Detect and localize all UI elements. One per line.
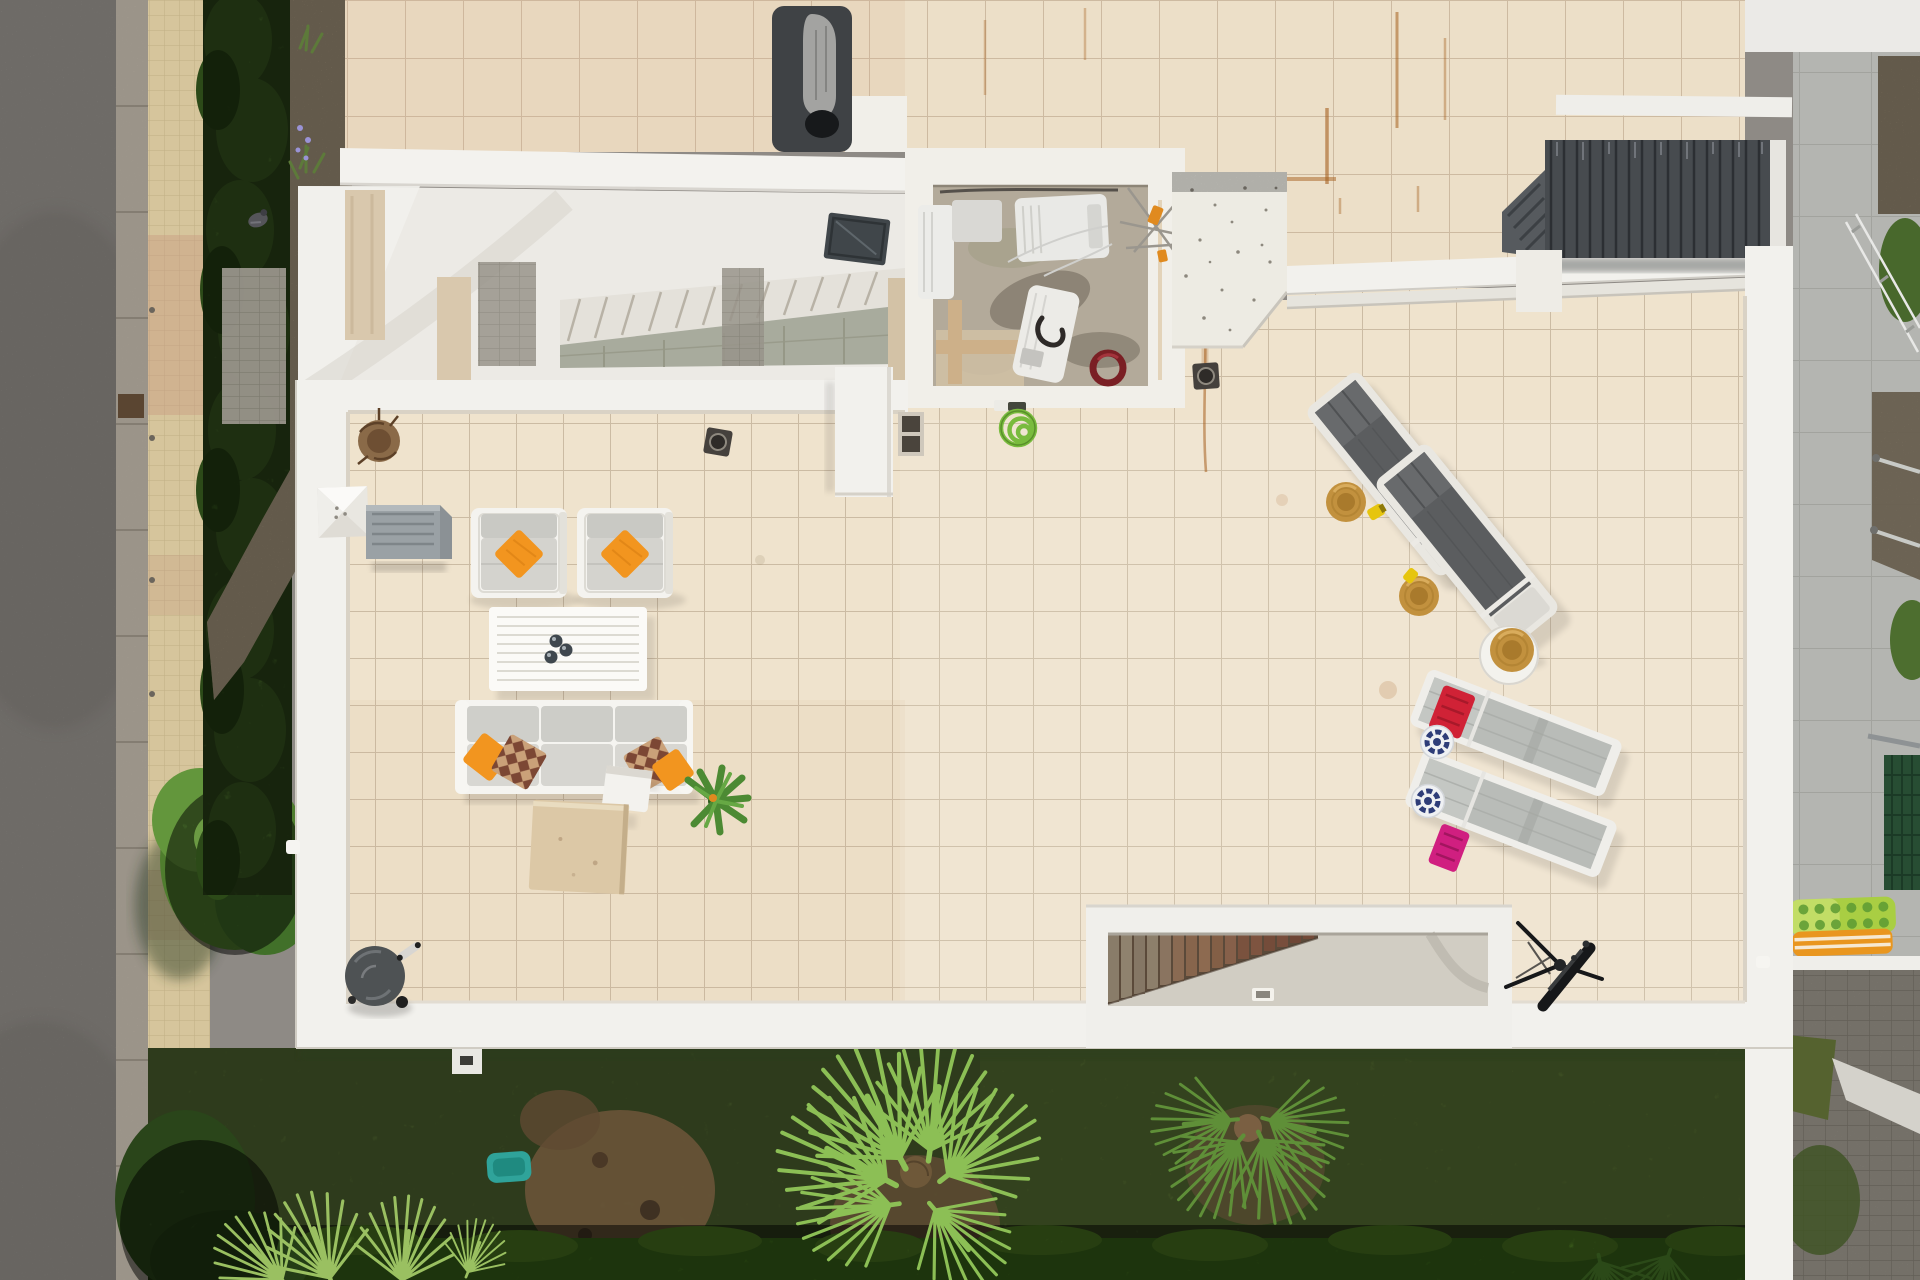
hedge-row xyxy=(196,0,292,900)
right-parapet xyxy=(1745,246,1793,1280)
sand-cube xyxy=(529,800,638,895)
stone-path xyxy=(222,268,286,424)
aerial-photo-stage xyxy=(0,0,1920,1280)
aerial-photo xyxy=(0,0,1920,1280)
armchair-left xyxy=(471,508,567,598)
top-parapet xyxy=(296,380,908,412)
patterned-hat xyxy=(1420,725,1454,759)
sofa xyxy=(455,700,699,804)
pool-floats xyxy=(1789,896,1897,957)
porch xyxy=(298,186,926,402)
straw-hat xyxy=(1326,482,1366,522)
floor-drain xyxy=(703,427,733,457)
straw-hat xyxy=(1399,576,1439,616)
pergola-pier xyxy=(1516,250,1562,312)
machine-room xyxy=(905,148,1186,408)
sculpture xyxy=(772,6,852,152)
utility-lid xyxy=(118,394,144,418)
bottom-parapet xyxy=(296,1002,1793,1048)
skylight xyxy=(823,212,890,265)
wall-tap xyxy=(286,840,300,854)
armchair-right xyxy=(577,508,673,598)
left-parapet xyxy=(296,380,348,1048)
pyramid-cap xyxy=(317,486,369,538)
patterned-hat xyxy=(1411,784,1445,818)
teal-roller xyxy=(486,1151,532,1184)
stairwell xyxy=(1086,906,1512,1048)
coffee-table xyxy=(489,607,655,701)
floor-drain xyxy=(1192,362,1220,390)
